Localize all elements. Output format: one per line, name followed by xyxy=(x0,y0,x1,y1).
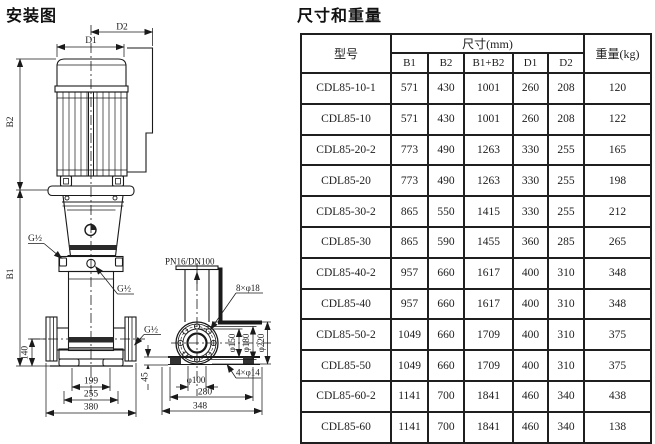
model-cell: CDL85-20 xyxy=(301,165,391,196)
value-cell: 460 xyxy=(513,381,548,412)
value-cell: 400 xyxy=(513,289,548,320)
value-cell: 571 xyxy=(391,104,428,135)
label-b2: B2 xyxy=(6,116,16,127)
model-cell: CDL85-50 xyxy=(301,350,391,381)
label-pn: PN16/DN100 xyxy=(165,257,215,267)
value-cell: 660 xyxy=(428,289,464,320)
value-cell: 1841 xyxy=(464,412,513,443)
model-cell: CDL85-60-2 xyxy=(301,381,391,412)
value-cell: 120 xyxy=(584,73,651,104)
header-d2: D2 xyxy=(548,53,584,73)
value-cell: 1709 xyxy=(464,319,513,350)
motor-fins xyxy=(57,92,127,176)
value-cell: 1455 xyxy=(464,227,513,258)
value-cell: 700 xyxy=(428,412,464,443)
value-cell: 310 xyxy=(548,289,584,320)
value-cell: 122 xyxy=(584,104,651,135)
value-cell: 340 xyxy=(548,381,584,412)
table-header: 型号 尺寸(mm) 重量(kg) B1 B2 B1+B2 D1 D2 xyxy=(301,34,651,73)
value-cell: 375 xyxy=(584,350,651,381)
model-cell: CDL85-30-2 xyxy=(301,196,391,227)
value-cell: 1049 xyxy=(391,319,428,350)
value-cell: 348 xyxy=(584,289,651,320)
table-row: CDL85-20-27734901263330255165 xyxy=(301,135,651,166)
value-cell: 330 xyxy=(513,196,548,227)
value-cell: 400 xyxy=(513,319,548,350)
installation-title: 安装图 xyxy=(6,2,57,26)
label-280: 280 xyxy=(198,388,213,398)
value-cell: 660 xyxy=(428,350,464,381)
value-cell: 400 xyxy=(513,350,548,381)
header-size-group: 尺寸(mm) xyxy=(391,34,584,53)
value-cell: 1617 xyxy=(464,289,513,320)
label-d220: φ220 xyxy=(256,333,266,352)
value-cell: 490 xyxy=(428,165,464,196)
value-cell: 865 xyxy=(391,196,428,227)
value-cell: 1001 xyxy=(464,104,513,135)
page: { "ink_color": "#1a1a1a", "background_co… xyxy=(0,0,655,422)
label-d1: D1 xyxy=(85,36,97,46)
value-cell: 1049 xyxy=(391,350,428,381)
value-cell: 285 xyxy=(548,227,584,258)
value-cell: 310 xyxy=(548,350,584,381)
value-cell: 1617 xyxy=(464,258,513,289)
value-cell: 208 xyxy=(548,104,584,135)
table-row: CDL85-6011417001841460340138 xyxy=(301,412,651,443)
value-cell: 438 xyxy=(584,381,651,412)
value-cell: 957 xyxy=(391,289,428,320)
value-cell: 212 xyxy=(584,196,651,227)
value-cell: 1263 xyxy=(464,135,513,166)
value-cell: 660 xyxy=(428,258,464,289)
header-b2: B2 xyxy=(428,53,464,73)
table-row: CDL85-409576601617400310348 xyxy=(301,289,651,320)
value-cell: 375 xyxy=(584,319,651,350)
label-g-half-right: G½ xyxy=(144,325,158,336)
value-cell: 330 xyxy=(513,165,548,196)
table-row: CDL85-5010496601709400310375 xyxy=(301,350,651,381)
value-cell: 255 xyxy=(548,165,584,196)
label-d180: φ180 xyxy=(241,333,251,352)
model-cell: CDL85-40-2 xyxy=(301,258,391,289)
value-cell: 260 xyxy=(513,104,548,135)
value-cell: 198 xyxy=(584,165,651,196)
model-cell: CDL85-30 xyxy=(301,227,391,258)
label-4xd14: 4×φ14 xyxy=(236,368,260,378)
value-cell: 255 xyxy=(548,135,584,166)
header-b1: B1 xyxy=(391,53,428,73)
model-cell: CDL85-50-2 xyxy=(301,319,391,350)
value-cell: 490 xyxy=(428,135,464,166)
table-row: CDL85-10-15714301001260208120 xyxy=(301,73,651,104)
model-cell: CDL85-40 xyxy=(301,289,391,320)
value-cell: 255 xyxy=(548,196,584,227)
value-cell: 360 xyxy=(513,227,548,258)
value-cell: 340 xyxy=(548,412,584,443)
table-row: CDL85-60-211417001841460340438 xyxy=(301,381,651,412)
value-cell: 1709 xyxy=(464,350,513,381)
value-cell: 208 xyxy=(548,73,584,104)
table-row: CDL85-308655901455360285265 xyxy=(301,227,651,258)
value-cell: 660 xyxy=(428,319,464,350)
value-cell: 1141 xyxy=(391,381,428,412)
installation-drawing: D2 D1 B2 B1 G½ G½ 140 199 255 380 PN16/D… xyxy=(0,0,300,422)
value-cell: 1415 xyxy=(464,196,513,227)
value-cell: 348 xyxy=(584,258,651,289)
dimensions-weight-title: 尺寸和重量 xyxy=(297,2,382,26)
label-255: 255 xyxy=(84,390,99,400)
dimensions-weight-table: 型号 尺寸(mm) 重量(kg) B1 B2 B1+B2 D1 D2 CDL85… xyxy=(300,33,652,444)
table-row: CDL85-30-28655501415330255212 xyxy=(301,196,651,227)
value-cell: 460 xyxy=(513,412,548,443)
label-d2: D2 xyxy=(116,23,128,33)
label-g-half-mid: G½ xyxy=(117,284,131,295)
header-b1b2: B1+B2 xyxy=(464,53,513,73)
value-cell: 260 xyxy=(513,73,548,104)
label-140: 140 xyxy=(21,346,31,361)
value-cell: 1141 xyxy=(391,412,428,443)
value-cell: 310 xyxy=(548,258,584,289)
label-b1: B1 xyxy=(6,268,16,279)
value-cell: 590 xyxy=(428,227,464,258)
label-g-half-left: G½ xyxy=(28,233,42,244)
table-row: CDL85-40-29576601617400310348 xyxy=(301,258,651,289)
pump-front-view xyxy=(46,48,153,366)
value-cell: 865 xyxy=(391,227,428,258)
value-cell: 430 xyxy=(428,73,464,104)
value-cell: 330 xyxy=(513,135,548,166)
label-d100: φ100 xyxy=(187,375,206,385)
table-row: CDL85-105714301001260208122 xyxy=(301,104,651,135)
value-cell: 1001 xyxy=(464,73,513,104)
value-cell: 957 xyxy=(391,258,428,289)
value-cell: 571 xyxy=(391,73,428,104)
header-d1: D1 xyxy=(513,53,548,73)
value-cell: 430 xyxy=(428,104,464,135)
header-model: 型号 xyxy=(301,34,391,73)
model-cell: CDL85-60 xyxy=(301,412,391,443)
table-row: CDL85-207734901263330255198 xyxy=(301,165,651,196)
value-cell: 773 xyxy=(391,165,428,196)
value-cell: 1263 xyxy=(464,165,513,196)
value-cell: 400 xyxy=(513,258,548,289)
label-348: 348 xyxy=(193,402,208,412)
label-d150: φ150 xyxy=(227,333,237,352)
model-cell: CDL85-20-2 xyxy=(301,135,391,166)
model-cell: CDL85-10-1 xyxy=(301,73,391,104)
value-cell: 265 xyxy=(584,227,651,258)
value-cell: 773 xyxy=(391,135,428,166)
model-cell: CDL85-10 xyxy=(301,104,391,135)
value-cell: 310 xyxy=(548,319,584,350)
label-45: 45 xyxy=(141,372,151,382)
value-cell: 550 xyxy=(428,196,464,227)
dimension-lines xyxy=(16,28,271,417)
header-weight: 重量(kg) xyxy=(584,34,651,73)
value-cell: 1841 xyxy=(464,381,513,412)
label-8xd18: 8×φ18 xyxy=(236,283,260,293)
value-cell: 138 xyxy=(584,412,651,443)
value-cell: 165 xyxy=(584,135,651,166)
table-row: CDL85-50-210496601709400310375 xyxy=(301,319,651,350)
value-cell: 700 xyxy=(428,381,464,412)
table-body: CDL85-10-15714301001260208120CDL85-10571… xyxy=(301,73,651,443)
label-199: 199 xyxy=(84,377,99,387)
label-380: 380 xyxy=(84,403,99,413)
